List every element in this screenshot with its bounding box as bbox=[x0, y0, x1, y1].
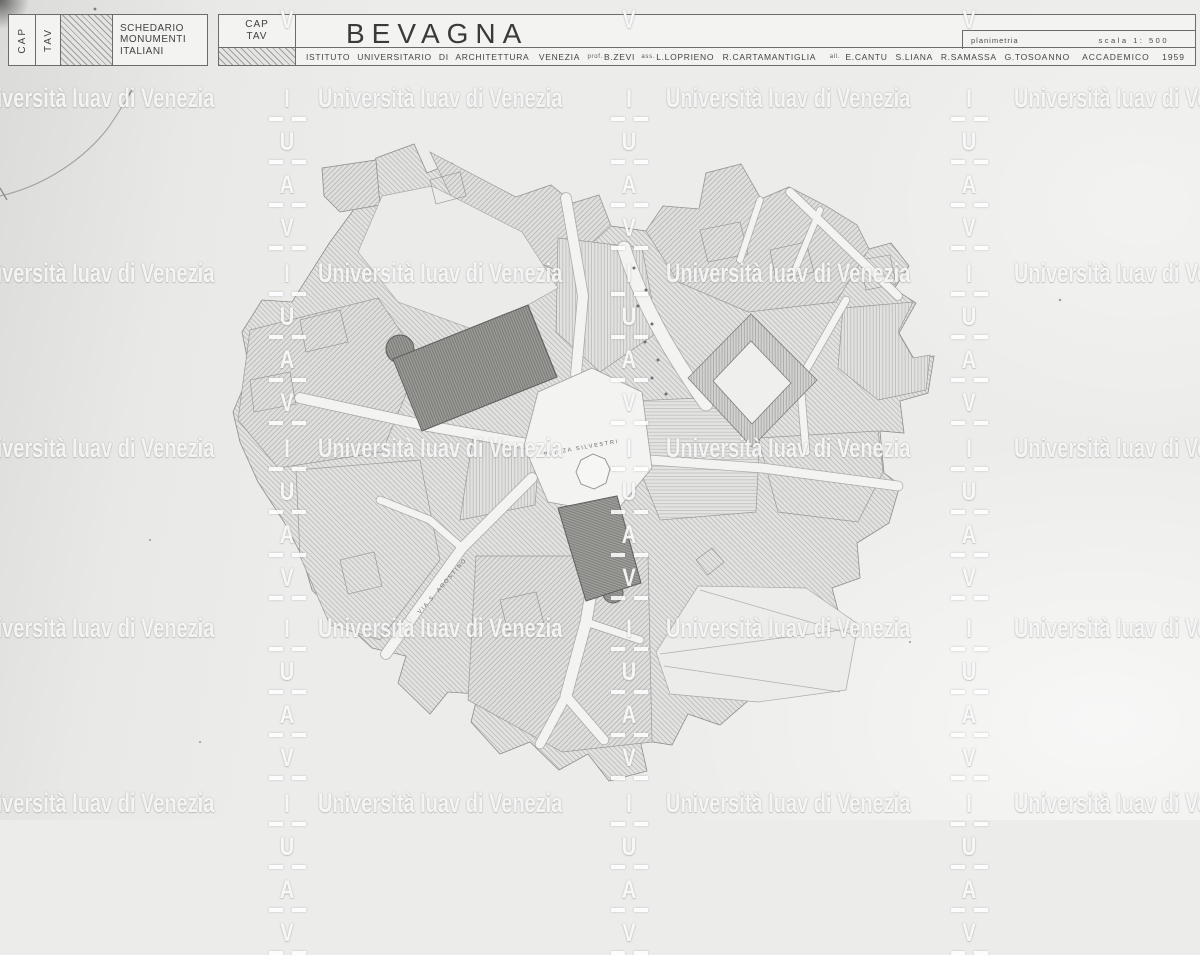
cap-column-label: CAP bbox=[17, 27, 28, 54]
cap-tav-label: CAP TAV bbox=[245, 19, 269, 43]
prof-prefix: prof. bbox=[587, 54, 603, 60]
town-plan-map: PIAZZA SILVESTRI VIA S. AGOSTINO bbox=[0, 0, 1200, 820]
watermark-dash bbox=[269, 908, 306, 912]
institute-name: ISTITUTO UNIVERSITARIO DI ARCHITETTURA bbox=[306, 52, 529, 62]
assistant-prefix: ass. bbox=[641, 54, 655, 60]
watermark-dash bbox=[269, 865, 306, 869]
student-name: G.TOSO bbox=[1005, 52, 1042, 62]
watermark-vertical-letter: U bbox=[951, 833, 986, 862]
assistant-name: L.LOPRIENO bbox=[656, 52, 714, 62]
student-name: R.SAMASSA bbox=[941, 52, 997, 62]
scanned-archive-sheet: { "header": { "col_cap": "CAP", "col_tav… bbox=[0, 0, 1200, 820]
drawing-type-label: planimetria bbox=[971, 36, 1019, 45]
schedario-label: SCHEDARIO MONUMENTI ITALIANI bbox=[113, 23, 186, 58]
detached-block bbox=[322, 160, 380, 212]
student-name: E.CANTU bbox=[845, 52, 887, 62]
watermark-dash bbox=[611, 951, 648, 955]
watermark-vertical-letter: V bbox=[611, 919, 646, 948]
assistant2-name: R.CARTAMANTIGLIA bbox=[723, 52, 817, 62]
main-title-box: BEVAGNA planimetria scala 1: 500 ISTITUT… bbox=[295, 14, 1196, 66]
watermark-dash bbox=[611, 822, 648, 826]
watermark-vertical-letter: A bbox=[611, 876, 646, 905]
index-hatch-cell bbox=[61, 15, 113, 65]
tav-column-label: TAV bbox=[43, 28, 54, 52]
watermark-vertical-letter: U bbox=[269, 833, 304, 862]
city-label: VENEZIA bbox=[539, 52, 580, 62]
watermark-dash bbox=[269, 822, 306, 826]
students-prefix: all. bbox=[830, 54, 840, 60]
watermark-vertical-letter: A bbox=[269, 876, 304, 905]
student-name: S.LIANA bbox=[895, 52, 933, 62]
watermark-dash bbox=[951, 951, 988, 955]
index-box: CAP TAV SCHEDARIO MONUMENTI ITALIANI bbox=[8, 14, 208, 66]
watermark-dash bbox=[611, 908, 648, 912]
watermark-dash bbox=[269, 951, 306, 955]
watermark-dash bbox=[611, 865, 648, 869]
watermark-dash bbox=[951, 908, 988, 912]
cap-tav-hatch-cell bbox=[219, 47, 295, 65]
watermark-vertical-letter: V bbox=[269, 919, 304, 948]
sheet-title: BEVAGNA bbox=[346, 18, 528, 50]
watermark-vertical-letter: A bbox=[951, 876, 986, 905]
institute-row: ISTITUTO UNIVERSITARIO DI ARCHITETTURA V… bbox=[296, 47, 1195, 65]
watermark-vertical-letter: U bbox=[611, 833, 646, 862]
watermark-dash bbox=[951, 822, 988, 826]
academic-year-label: ANNO ACCADEMICO 1959 bbox=[1042, 52, 1185, 62]
scan-crack-mark bbox=[0, 88, 133, 200]
watermark-vertical-letter: V bbox=[951, 919, 986, 948]
watermark-dash bbox=[951, 865, 988, 869]
scale-label: scala 1: 500 bbox=[1099, 36, 1169, 45]
prof-name: B.ZEVI bbox=[604, 52, 635, 62]
cap-tav-box: CAP TAV bbox=[218, 14, 296, 66]
